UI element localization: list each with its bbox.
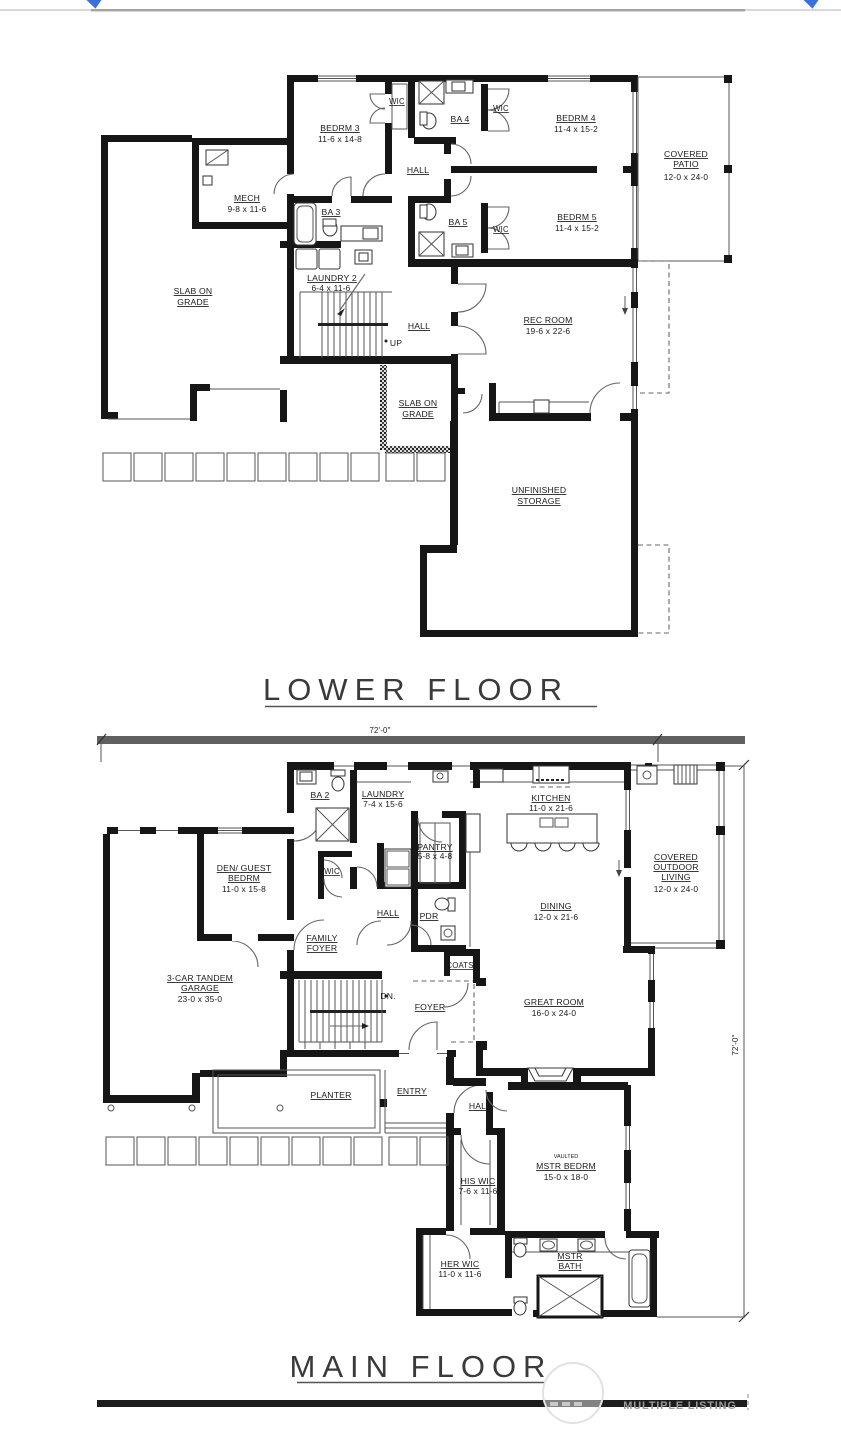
svg-text:WIC: WIC: [493, 104, 509, 113]
svg-text:GRADE: GRADE: [402, 409, 434, 419]
svg-text:MULTIPLE LISTING: MULTIPLE LISTING: [623, 1400, 736, 1412]
svg-text:WIC: WIC: [324, 867, 340, 876]
svg-text:MECH: MECH: [234, 193, 260, 203]
svg-text:REC ROOM: REC ROOM: [524, 315, 573, 325]
svg-text:HALL: HALL: [377, 908, 399, 918]
svg-text:23-0 x 35-0: 23-0 x 35-0: [178, 994, 223, 1004]
svg-text:BATH: BATH: [558, 1261, 581, 1271]
svg-text:HALL: HALL: [407, 165, 429, 175]
svg-text:DINING: DINING: [540, 901, 571, 911]
svg-text:72'-0": 72'-0": [731, 1034, 740, 1055]
svg-text:FOYER: FOYER: [307, 943, 338, 953]
svg-text:COATS: COATS: [446, 961, 473, 970]
svg-text:11-4 x 15-2: 11-4 x 15-2: [555, 223, 599, 233]
svg-text:LAUNDRY: LAUNDRY: [362, 789, 404, 799]
svg-text:VAULTED: VAULTED: [554, 1154, 579, 1160]
svg-text:UNFINISHED: UNFINISHED: [512, 485, 567, 495]
svg-text:11-6 x 14-8: 11-6 x 14-8: [318, 134, 362, 144]
svg-text:FOYER: FOYER: [415, 1002, 446, 1012]
svg-text:72'-0": 72'-0": [369, 726, 390, 735]
svg-text:16-0 x 24-0: 16-0 x 24-0: [532, 1008, 577, 1018]
svg-text:12-0 x 24-0: 12-0 x 24-0: [654, 884, 699, 894]
svg-text:11-4 x 15-2: 11-4 x 15-2: [554, 124, 598, 134]
svg-text:11-0 x 15-8: 11-0 x 15-8: [222, 884, 266, 894]
svg-text:WIC: WIC: [493, 225, 509, 234]
svg-text:COVERED: COVERED: [654, 852, 698, 862]
svg-text:BA 3: BA 3: [322, 207, 341, 217]
svg-text:WIC: WIC: [389, 97, 405, 106]
svg-text:9-8 x 11-6: 9-8 x 11-6: [227, 204, 266, 214]
svg-text:HALL: HALL: [408, 321, 430, 331]
svg-text:BEDRM 4: BEDRM 4: [556, 113, 596, 123]
svg-text:KITCHEN: KITCHEN: [531, 793, 570, 803]
svg-text:GARAGE: GARAGE: [181, 983, 219, 993]
svg-text:COVERED: COVERED: [664, 149, 708, 159]
svg-text:MAIN FLOOR: MAIN FLOOR: [290, 1349, 553, 1384]
svg-text:UP: UP: [390, 338, 402, 348]
svg-text:BA 2: BA 2: [311, 790, 330, 800]
svg-text:7-6 x 11-6: 7-6 x 11-6: [458, 1186, 497, 1196]
svg-text:5-8 x 4-8: 5-8 x 4-8: [418, 851, 453, 861]
svg-text:12-0 x 21-6: 12-0 x 21-6: [534, 912, 579, 922]
svg-text:11-0 x 11-6: 11-0 x 11-6: [438, 1269, 481, 1279]
svg-text:SLAB ON: SLAB ON: [399, 398, 438, 408]
svg-text:PDR: PDR: [420, 911, 439, 921]
svg-text:12-0 x 24-0: 12-0 x 24-0: [664, 172, 709, 182]
svg-text:SLAB ON: SLAB ON: [174, 286, 213, 296]
svg-text:19-6 x 22-6: 19-6 x 22-6: [526, 326, 571, 336]
svg-text:BA 5: BA 5: [449, 217, 468, 227]
svg-text:PATIO: PATIO: [673, 159, 699, 169]
svg-text:LIVING: LIVING: [661, 872, 690, 882]
svg-text:MSTR BEDRM: MSTR BEDRM: [536, 1161, 596, 1171]
svg-text:3-CAR TANDEM: 3-CAR TANDEM: [167, 973, 233, 983]
svg-text:6-4 x 11-6: 6-4 x 11-6: [311, 283, 350, 293]
svg-text:HER WIC: HER WIC: [441, 1259, 480, 1269]
svg-text:STORAGE: STORAGE: [517, 496, 560, 506]
svg-text:DN.: DN.: [380, 991, 395, 1001]
svg-text:MSTR: MSTR: [557, 1251, 582, 1261]
svg-text:15-0 x 18-0: 15-0 x 18-0: [544, 1172, 589, 1182]
svg-text:HIS WIC: HIS WIC: [461, 1176, 496, 1186]
svg-text:DEN/ GUEST: DEN/ GUEST: [217, 863, 272, 873]
svg-text:HALL: HALL: [469, 1101, 491, 1111]
svg-text:11-0 x 21-6: 11-0 x 21-6: [529, 803, 573, 813]
svg-text:PLANTER: PLANTER: [310, 1090, 351, 1100]
svg-text:BA 4: BA 4: [451, 114, 470, 124]
svg-text:GRADE: GRADE: [177, 297, 209, 307]
svg-text:BEDRM 3: BEDRM 3: [320, 123, 360, 133]
svg-text:7-4 x 15-6: 7-4 x 15-6: [363, 799, 403, 809]
svg-text:ENTRY: ENTRY: [397, 1086, 427, 1096]
svg-text:OUTDOOR: OUTDOOR: [653, 862, 698, 872]
svg-text:BEDRM 5: BEDRM 5: [557, 212, 597, 222]
svg-text:BEDRM: BEDRM: [228, 873, 260, 883]
svg-text:GREAT ROOM: GREAT ROOM: [524, 997, 584, 1007]
svg-text:LAUNDRY 2: LAUNDRY 2: [307, 273, 357, 283]
svg-text:LOWER FLOOR: LOWER FLOOR: [263, 672, 569, 707]
svg-text:FAMILY: FAMILY: [306, 933, 337, 943]
